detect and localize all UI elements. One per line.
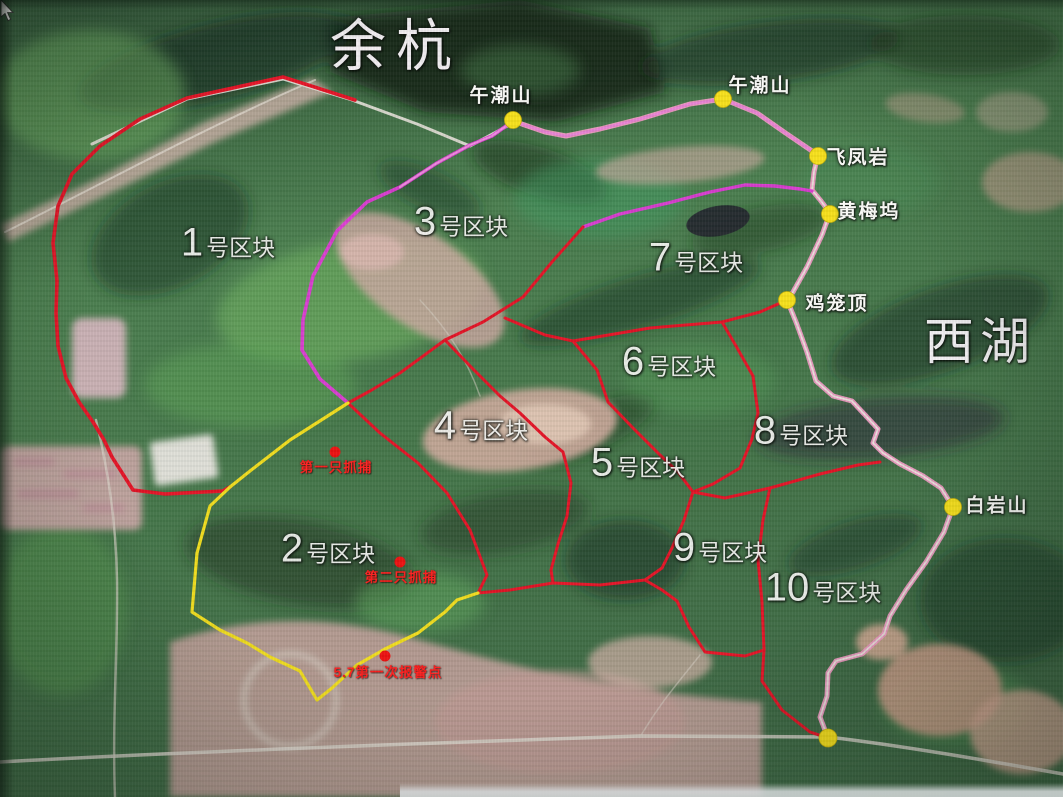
zone-7-number: 7 [649,236,671,280]
zone-1-number: 1 [181,221,203,265]
incident-dot-first-alarm [380,651,391,662]
zone-1-suffix: 号区块 [206,235,275,261]
zone-3-suffix: 号区块 [439,214,508,240]
zone-8-number: 8 [754,409,776,453]
incident-label-second-capture: 第二只抓捕 [365,566,438,586]
map-canvas[interactable] [0,0,1063,797]
waypoint-label-wuchaoshan-1: 午潮山 [469,81,532,108]
waypoint-dot-huangmeiwu [822,206,839,223]
zone-4-suffix: 号区块 [459,418,528,444]
zone-10-suffix: 号区块 [812,580,881,606]
waypoint-dot-feifengyan [810,148,827,165]
incident-label-first-alarm: 5.7第一次报警点 [334,661,443,681]
waypoint-label-huangmeiwu: 黄梅坞 [837,197,900,224]
waypoint-dot-baiyanshan [945,499,962,516]
zone-label-8: 8号区块 [754,409,848,454]
cursor-icon [0,0,16,22]
waypoint-dot-jilongding [779,292,796,309]
waypoint-label-feifengyan: 飞凤岩 [826,143,889,170]
zone-label-10: 10号区块 [765,566,882,611]
zone-2-suffix: 号区块 [306,541,375,567]
zone-2-number: 2 [281,527,303,571]
zone-label-9: 9号区块 [673,526,767,571]
zone-7-suffix: 号区块 [674,250,743,276]
waypoint-dot-south [819,729,837,747]
zone-9-number: 9 [673,526,695,570]
incident-label-first-capture: 第一只抓捕 [300,456,373,476]
waypoint-label-jilongding: 鸡笼顶 [805,289,868,316]
zone-6-suffix: 号区块 [647,354,716,380]
region-label-yuhang: 余杭 [330,2,462,83]
zone-5-suffix: 号区块 [616,455,685,481]
zone-label-3: 3号区块 [414,200,508,245]
zone-label-4: 4号区块 [434,404,528,449]
zone-label-1: 1号区块 [181,221,275,266]
region-label-xihu: 西湖 [924,302,1036,374]
zone-5-number: 5 [591,441,613,485]
zone-6-number: 6 [622,340,644,384]
zone-label-7: 7号区块 [649,236,743,281]
zone-9-suffix: 号区块 [698,540,767,566]
waypoint-label-baiyanshan: 白岩山 [965,491,1028,518]
zone-8-suffix: 号区块 [779,423,848,449]
zone-label-5: 5号区块 [591,441,685,486]
waypoint-label-wuchaoshan-2: 午潮山 [728,71,791,98]
satellite-map-view[interactable]: 余杭 西湖 1号区块 2号区块 3号区块 4号区块 5号区块 6号区块 7号区块… [0,0,1063,797]
zone-3-number: 3 [414,200,436,244]
zone-4-number: 4 [434,404,456,448]
waypoint-dot-wuchaoshan-1 [505,112,522,129]
zone-label-2: 2号区块 [281,527,375,572]
zone-10-number: 10 [765,566,810,610]
zone-label-6: 6号区块 [622,340,716,385]
